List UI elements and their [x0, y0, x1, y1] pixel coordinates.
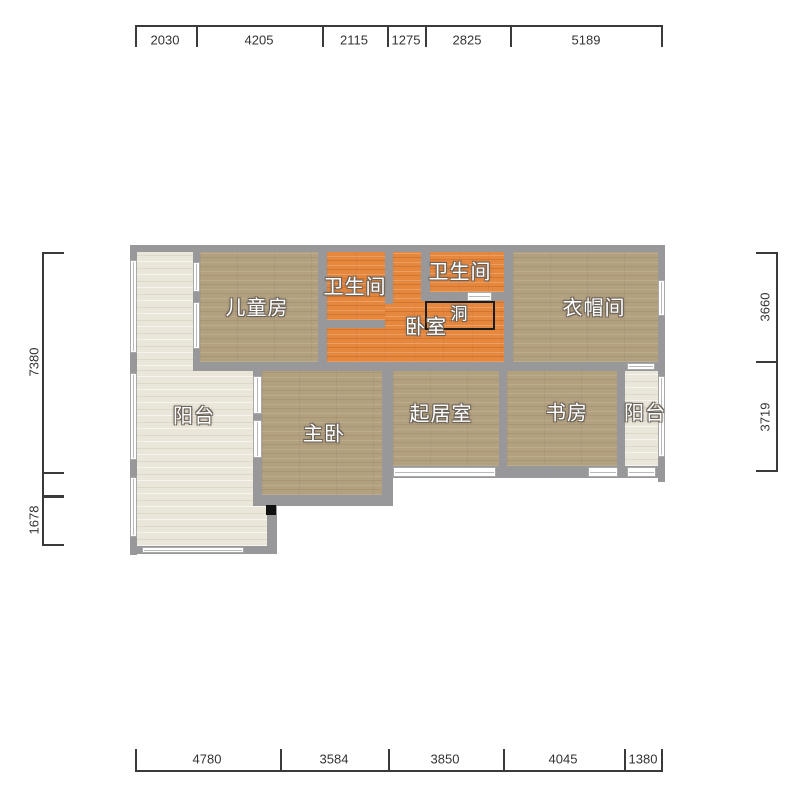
dim-bottom-tick	[135, 749, 137, 772]
room-label-balcony-left: 阳台	[173, 400, 215, 429]
dim-top-tick	[425, 25, 427, 47]
room-label-opening: 洞	[451, 300, 468, 325]
dim-bottom-tick	[624, 749, 626, 772]
dim-top-tick	[387, 25, 389, 47]
room-label-bedroom: 卧室	[405, 311, 447, 340]
dim-top-tick	[322, 25, 324, 47]
dim-right-value: 3719	[758, 403, 773, 432]
dim-left-value: 1678	[27, 506, 42, 535]
dim-right-tick	[756, 470, 778, 472]
window-balcony-right-bottom	[627, 467, 656, 477]
dim-top-tick	[196, 25, 198, 47]
dim-right-tick	[756, 252, 778, 254]
dim-bottom-value: 4780	[193, 752, 222, 767]
window-children-balcony-lower	[193, 302, 200, 349]
room-label-cloakroom: 衣帽间	[563, 292, 626, 321]
window-children-balcony-upper	[193, 262, 200, 292]
dim-top-value: 1275	[392, 33, 421, 48]
dim-bottom-value: 3584	[320, 752, 349, 767]
dim-top-tick	[510, 25, 512, 47]
dim-bottom-tick	[661, 749, 663, 772]
balcony-left-floor-lower	[137, 366, 253, 546]
dim-top-value: 2115	[340, 33, 368, 48]
dim-left-value: 7380	[27, 348, 42, 377]
floor-plan-canvas: 儿童房 卫生间 卫生间 卧室 洞 衣帽间 阳台 主卧 起居室 书房 阳台 203…	[0, 0, 800, 800]
window-master-balcony-lower	[253, 420, 262, 458]
dim-bottom-value: 4045	[549, 752, 578, 767]
window-left-lower	[130, 477, 137, 537]
dim-bottom-tick	[280, 749, 282, 772]
room-label-bathroom-1: 卫生间	[324, 271, 387, 300]
door-bathroom2	[467, 292, 492, 301]
dim-bottom-line	[135, 770, 663, 772]
room-label-living: 起居室	[410, 398, 473, 427]
wall-cloakroom-left	[504, 252, 513, 362]
dim-bottom-value: 3850	[431, 752, 460, 767]
window-master-balcony-upper	[253, 376, 262, 414]
wall-bathroom1-bottom	[318, 320, 385, 328]
room-label-study: 书房	[546, 397, 588, 426]
wall-middle-horizontal	[193, 362, 665, 371]
dim-left-tick	[42, 495, 64, 498]
room-label-master: 主卧	[303, 418, 345, 447]
room-label-balcony-right: 阳台	[624, 397, 666, 426]
window-balcony-right-top	[627, 363, 655, 370]
dim-top-value: 5189	[572, 33, 601, 48]
window-living-bottom	[393, 467, 496, 477]
wall-living-study	[499, 371, 507, 466]
window-right-top	[658, 280, 665, 316]
dim-bottom-tick	[503, 749, 505, 772]
room-label-bathroom-2: 卫生间	[429, 256, 492, 285]
window-left-upper	[130, 260, 137, 353]
dim-top-tick	[135, 25, 137, 47]
dim-left-tick	[42, 544, 64, 546]
corner-marker	[266, 505, 276, 515]
dim-right-tick	[756, 361, 778, 363]
dim-bottom-tick	[388, 749, 390, 772]
balcony-left-floor-upper	[137, 252, 193, 366]
dim-top-value: 4205	[245, 33, 274, 48]
dim-left-tick	[42, 472, 64, 474]
dim-left-line	[42, 252, 44, 546]
room-label-children: 儿童房	[226, 292, 289, 321]
bedroom-floor-left	[327, 328, 385, 362]
wall-master-living	[382, 371, 393, 506]
dim-top-value: 2825	[453, 33, 482, 48]
dim-top-value: 2030	[151, 33, 180, 48]
dim-top-line	[135, 25, 663, 27]
window-left-middle	[130, 373, 137, 460]
dim-top-tick	[661, 25, 663, 47]
balcony-left-floor-corner	[253, 506, 267, 546]
wall-top-exterior	[130, 245, 665, 252]
wall-children-right	[318, 252, 327, 362]
dim-bottom-value: 1380	[629, 752, 658, 767]
dim-left-tick	[42, 252, 64, 254]
window-balcony-bottom	[142, 547, 244, 553]
window-study-bottom	[588, 467, 618, 477]
dim-right-value: 3660	[758, 293, 773, 322]
